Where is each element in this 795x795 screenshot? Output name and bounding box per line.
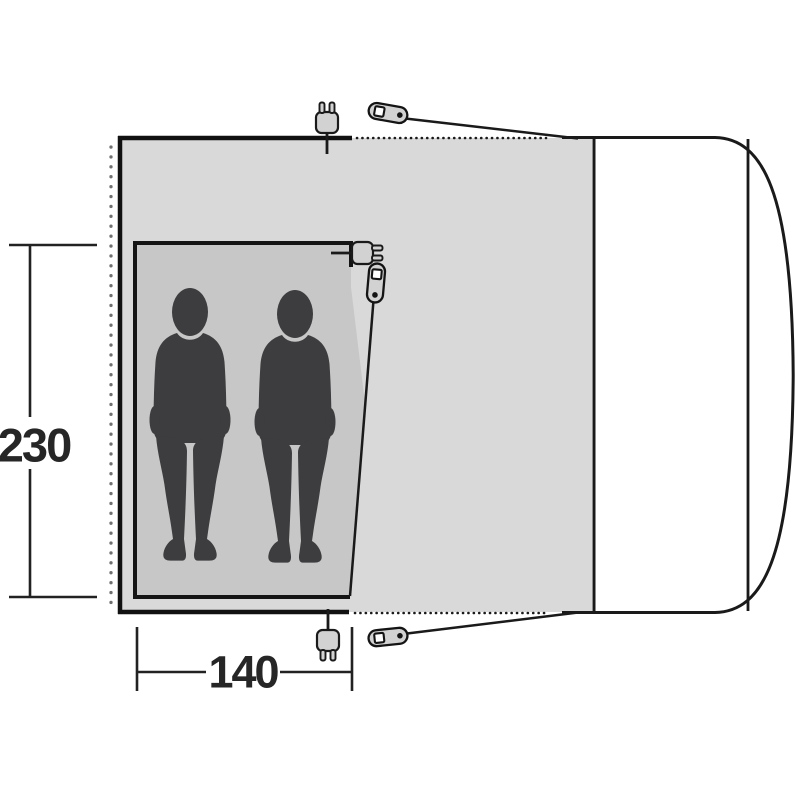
floorplan-svg: 230 140 [0, 0, 795, 795]
peg-bottom-right-icon [368, 627, 408, 647]
awning-floorplan-diagram: 230 140 [0, 0, 795, 795]
vehicle-body [594, 139, 792, 611]
dimension-width-label: 140 [208, 647, 278, 698]
peg-cabin-icon [366, 263, 385, 303]
dimension-depth-label: 230 [0, 419, 71, 472]
